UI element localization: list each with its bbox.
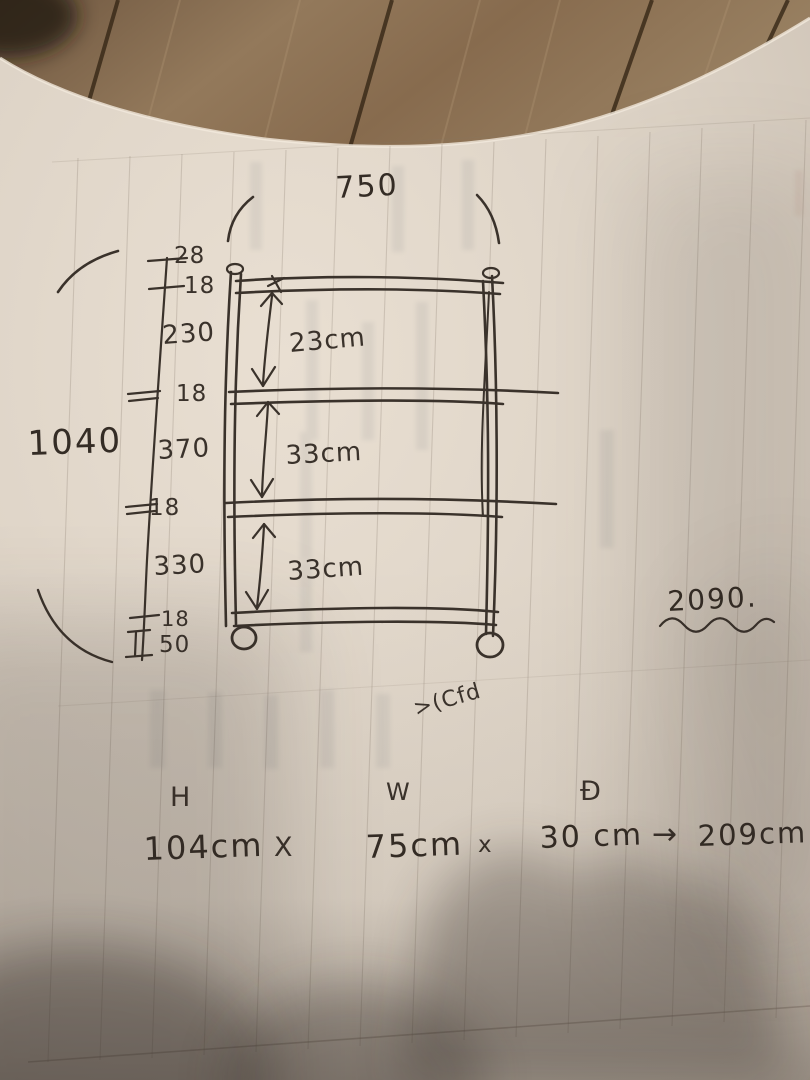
top-width-label: 750 (335, 168, 400, 206)
sketch-photo-canvas: 750 1040 28 18 230 18 370 18 330 18 50 2… (0, 0, 810, 1080)
dim-label-18a: 18 (184, 273, 215, 299)
photo-of-hand-drawn-shelf-sketch: 750 1040 28 18 230 18 370 18 330 18 50 2… (0, 0, 810, 1080)
dim-label-230: 230 (161, 317, 216, 351)
gap-label-33cm-a: 33cm (285, 437, 363, 471)
total-height-label: 1040 (27, 421, 123, 464)
dim-label-370: 370 (157, 433, 211, 466)
dim-label-18b: 18 (176, 381, 207, 407)
dim-label-18c: 18 (149, 495, 180, 521)
dim-label-28: 28 (174, 243, 205, 269)
